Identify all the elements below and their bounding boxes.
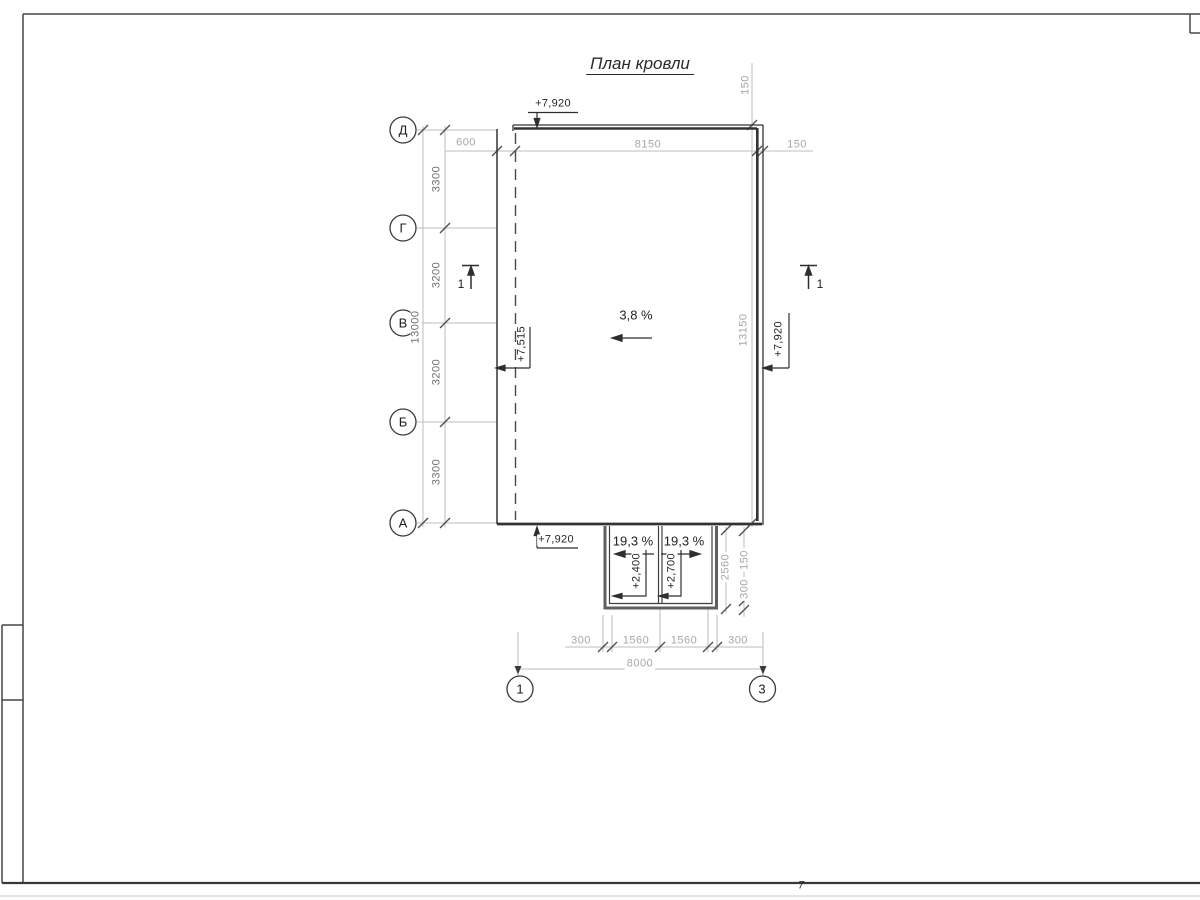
dim-bottom-seg2: 1560 xyxy=(621,636,651,647)
dim-bottom-seg3: 1560 xyxy=(669,636,699,647)
dim-bottom-total: 8000 xyxy=(625,659,655,670)
axis-label-a: А xyxy=(399,517,408,530)
roof-outline xyxy=(497,125,763,525)
axis-label-d: Д xyxy=(399,124,408,137)
canopy-right-elevation-arrowhead xyxy=(659,593,668,598)
slope-canopy-right: 19,3 % xyxy=(663,535,705,548)
dim-left-seg2: 3200 xyxy=(432,260,443,290)
axis-label-1: 1 xyxy=(516,683,523,696)
page-mark: 7 xyxy=(798,881,804,892)
elevation-left: +7,515 xyxy=(517,325,528,363)
right-elevation-arrowhead xyxy=(763,365,772,371)
drawing-sheet: План кровли Д Г В Б А 1 3 3300 3200 3200… xyxy=(0,0,1200,900)
dim-canopy-edge: 150 xyxy=(740,548,751,572)
drawing-linework xyxy=(0,0,1200,900)
dim-canopy-depth: 2560 xyxy=(721,552,732,582)
dim-top-parapet: 150 xyxy=(741,73,752,97)
slope-main: 3,8 % xyxy=(618,309,653,322)
axis-label-b: Б xyxy=(399,416,408,429)
dim-bottom-seg1: 300 xyxy=(569,636,593,647)
elevation-leaders xyxy=(496,113,789,599)
top-elevation-arrowhead xyxy=(534,119,540,128)
main-slope-arrowhead xyxy=(612,335,622,341)
canopy-right-slope-arrowhead xyxy=(690,551,700,557)
axis-label-3: 3 xyxy=(758,683,765,696)
section-number-right: 1 xyxy=(817,278,824,290)
section-right-arrowhead xyxy=(806,267,812,276)
elevation-canopy-right: +2,700 xyxy=(667,552,678,590)
section-number-left: 1 xyxy=(458,278,465,290)
elevation-top: +7,920 xyxy=(534,99,572,110)
elevation-bottom: +7,920 xyxy=(537,535,575,546)
dim-left-seg3: 3200 xyxy=(432,357,443,387)
axis-label-g: Г xyxy=(399,222,406,235)
dim-right-total: 13150 xyxy=(739,311,750,348)
axis-label-v: В xyxy=(399,317,408,330)
slope-canopy-left: 19,3 % xyxy=(612,535,654,548)
dim-top-span: 8150 xyxy=(633,140,663,151)
dim-canopy-wall: 300 xyxy=(740,577,751,601)
dim-bottom-seg4: 300 xyxy=(726,636,750,647)
canopy-left-slope-arrowhead xyxy=(615,551,625,557)
elevation-right: +7,920 xyxy=(774,320,785,358)
drawing-title: План кровли xyxy=(586,55,694,75)
dim-left-seg4: 3300 xyxy=(432,457,443,487)
sheet-frame xyxy=(0,14,1200,896)
axis-circles xyxy=(390,117,776,702)
section-left-arrowhead xyxy=(468,267,474,276)
dim-top-edge: 150 xyxy=(785,140,809,151)
dim-left-total: 13000 xyxy=(411,308,422,345)
canopy-left-elevation-arrowhead xyxy=(613,593,622,598)
dim-left-seg1: 3300 xyxy=(432,164,443,194)
elevation-canopy-left: +2,400 xyxy=(632,552,643,590)
dim-top-overhang: 600 xyxy=(454,138,478,149)
